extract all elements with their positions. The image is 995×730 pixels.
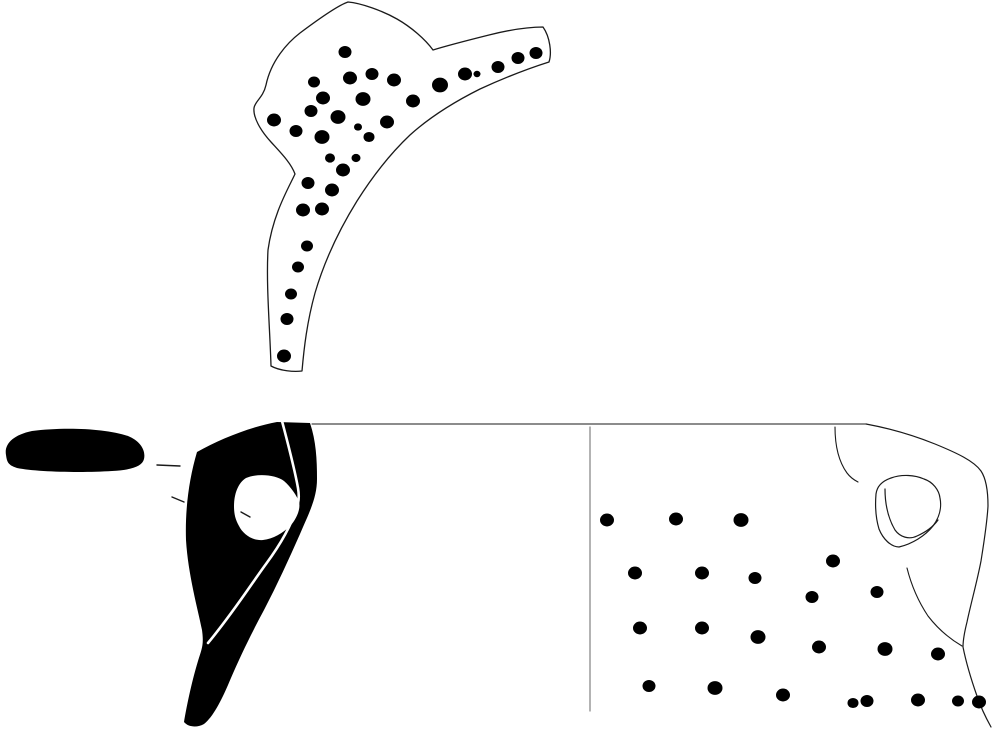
measure-tick <box>172 497 184 502</box>
top-sherd-outline <box>254 2 550 371</box>
puncture-dot <box>458 68 472 81</box>
puncture-dot <box>749 572 762 584</box>
puncture-dot <box>302 177 315 189</box>
puncture-dot <box>292 261 304 272</box>
puncture-dot <box>952 695 964 706</box>
puncture-dot <box>354 123 362 130</box>
puncture-dot <box>512 52 525 64</box>
handle-plan-silhouette <box>6 429 145 472</box>
puncture-dot <box>305 105 318 117</box>
puncture-dot <box>315 130 330 144</box>
puncture-dot <box>669 513 683 526</box>
puncture-dot <box>432 78 448 93</box>
puncture-dot <box>366 68 379 80</box>
puncture-dot <box>826 555 840 568</box>
puncture-dot <box>695 567 709 580</box>
puncture-dot <box>911 694 925 707</box>
puncture-dot <box>331 110 346 124</box>
puncture-dot <box>633 622 647 635</box>
puncture-dot <box>628 567 642 580</box>
puncture-dot <box>931 648 945 661</box>
puncture-dot <box>343 72 357 85</box>
puncture-dot <box>734 513 749 527</box>
puncture-dot <box>861 695 874 707</box>
puncture-dot <box>325 153 335 162</box>
handle-section-silhouette <box>184 422 317 726</box>
puncture-dot <box>325 184 339 197</box>
puncture-dot <box>281 313 294 325</box>
puncture-dot <box>972 696 986 709</box>
puncture-dot <box>812 641 826 654</box>
break-edge-line <box>907 568 962 646</box>
puncture-dot <box>296 204 310 217</box>
puncture-dot <box>751 630 766 644</box>
puncture-dot <box>530 47 543 59</box>
puncture-dot <box>267 114 281 127</box>
handle-scar-outer <box>876 475 941 547</box>
puncture-dot <box>352 154 361 162</box>
puncture-dot <box>315 203 329 216</box>
puncture-dot <box>336 164 350 177</box>
puncture-dot <box>708 681 723 695</box>
puncture-dot <box>301 240 313 251</box>
puncture-dot <box>492 61 505 73</box>
puncture-dot <box>380 116 394 129</box>
puncture-dot <box>474 71 481 77</box>
puncture-dot <box>406 95 420 108</box>
puncture-dot <box>643 680 656 692</box>
puncture-dot <box>806 591 819 603</box>
puncture-dot <box>871 586 884 598</box>
puncture-dot <box>277 350 291 363</box>
puncture-dot <box>387 74 401 87</box>
handle-attachment-curve <box>835 427 858 482</box>
puncture-dot <box>285 288 297 299</box>
puncture-dot <box>316 92 330 105</box>
puncture-dot <box>776 689 790 702</box>
pottery-figure <box>0 0 995 730</box>
puncture-dot <box>364 132 375 142</box>
top-sherd-group <box>254 2 550 371</box>
body-sherd-group <box>312 424 991 727</box>
puncture-dot <box>339 46 352 58</box>
body-sherd-outline <box>866 424 991 727</box>
puncture-dot <box>848 698 859 708</box>
puncture-dot <box>290 125 303 137</box>
measure-tick <box>157 465 180 466</box>
puncture-dot <box>308 76 320 87</box>
handle-plan-group <box>6 429 184 502</box>
puncture-dot <box>356 92 371 106</box>
handle-scar-inner <box>885 489 938 538</box>
puncture-dot <box>600 514 614 527</box>
illustration-page <box>0 0 995 730</box>
puncture-dot <box>878 642 893 656</box>
puncture-dot <box>695 622 709 635</box>
handle-section-group <box>184 421 317 726</box>
